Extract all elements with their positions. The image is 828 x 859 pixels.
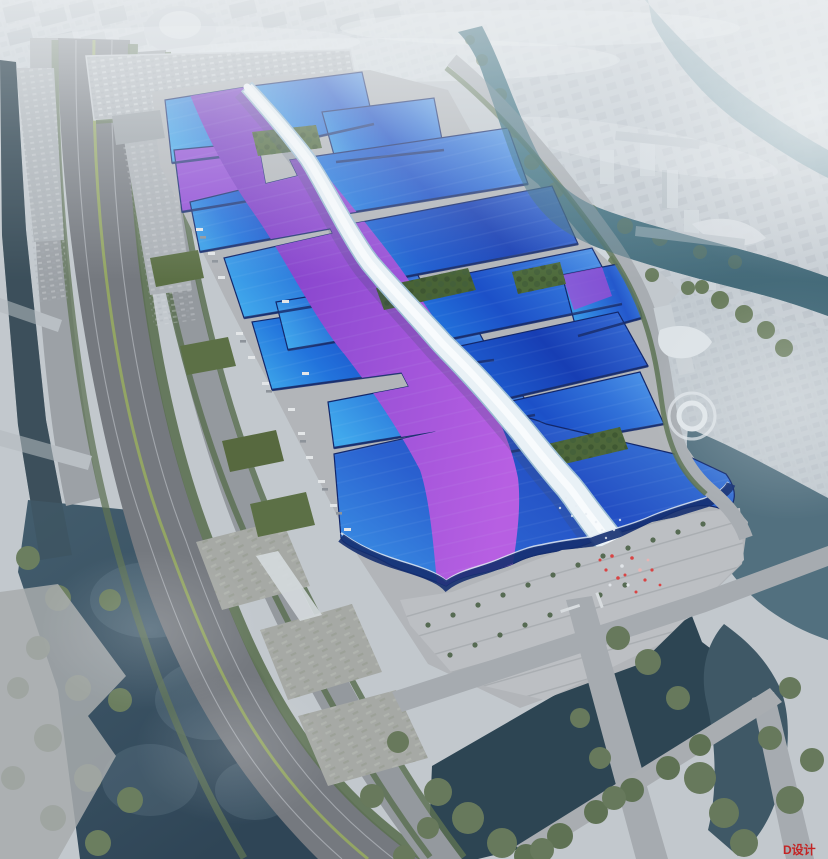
svg-text:D设计: D设计 [783,842,816,857]
